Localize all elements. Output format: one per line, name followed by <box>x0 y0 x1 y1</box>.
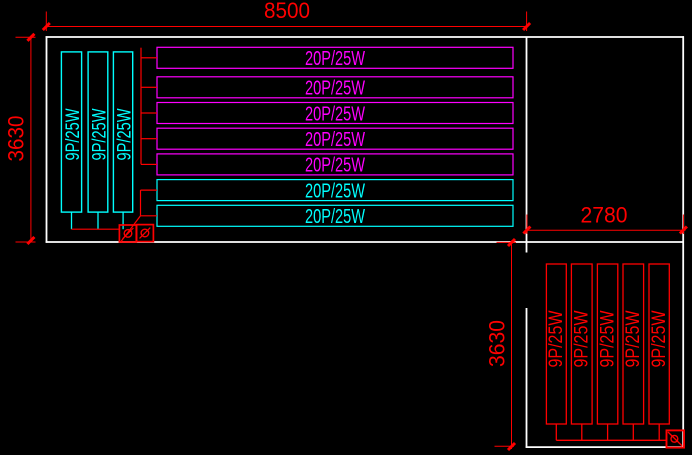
svg-text:20P/25W: 20P/25W <box>305 206 365 228</box>
svg-text:3630: 3630 <box>4 116 29 162</box>
svg-text:20P/25W: 20P/25W <box>305 48 365 70</box>
svg-text:9P/25W: 9P/25W <box>63 108 84 160</box>
svg-text:9P/25W: 9P/25W <box>597 310 618 367</box>
svg-text:9P/25W: 9P/25W <box>649 310 670 367</box>
svg-text:9P/25W: 9P/25W <box>115 108 136 160</box>
svg-text:20P/25W: 20P/25W <box>305 180 365 202</box>
svg-text:9P/25W: 9P/25W <box>546 310 567 367</box>
svg-text:3630: 3630 <box>485 320 510 367</box>
svg-text:9P/25W: 9P/25W <box>572 310 593 367</box>
svg-text:20P/25W: 20P/25W <box>305 103 365 125</box>
svg-text:8500: 8500 <box>264 0 310 23</box>
svg-text:2780: 2780 <box>581 203 628 228</box>
svg-text:20P/25W: 20P/25W <box>305 129 365 151</box>
svg-text:20P/25W: 20P/25W <box>305 155 365 177</box>
svg-text:9P/25W: 9P/25W <box>623 310 644 367</box>
svg-text:20P/25W: 20P/25W <box>305 78 365 100</box>
svg-text:9P/25W: 9P/25W <box>90 108 111 160</box>
